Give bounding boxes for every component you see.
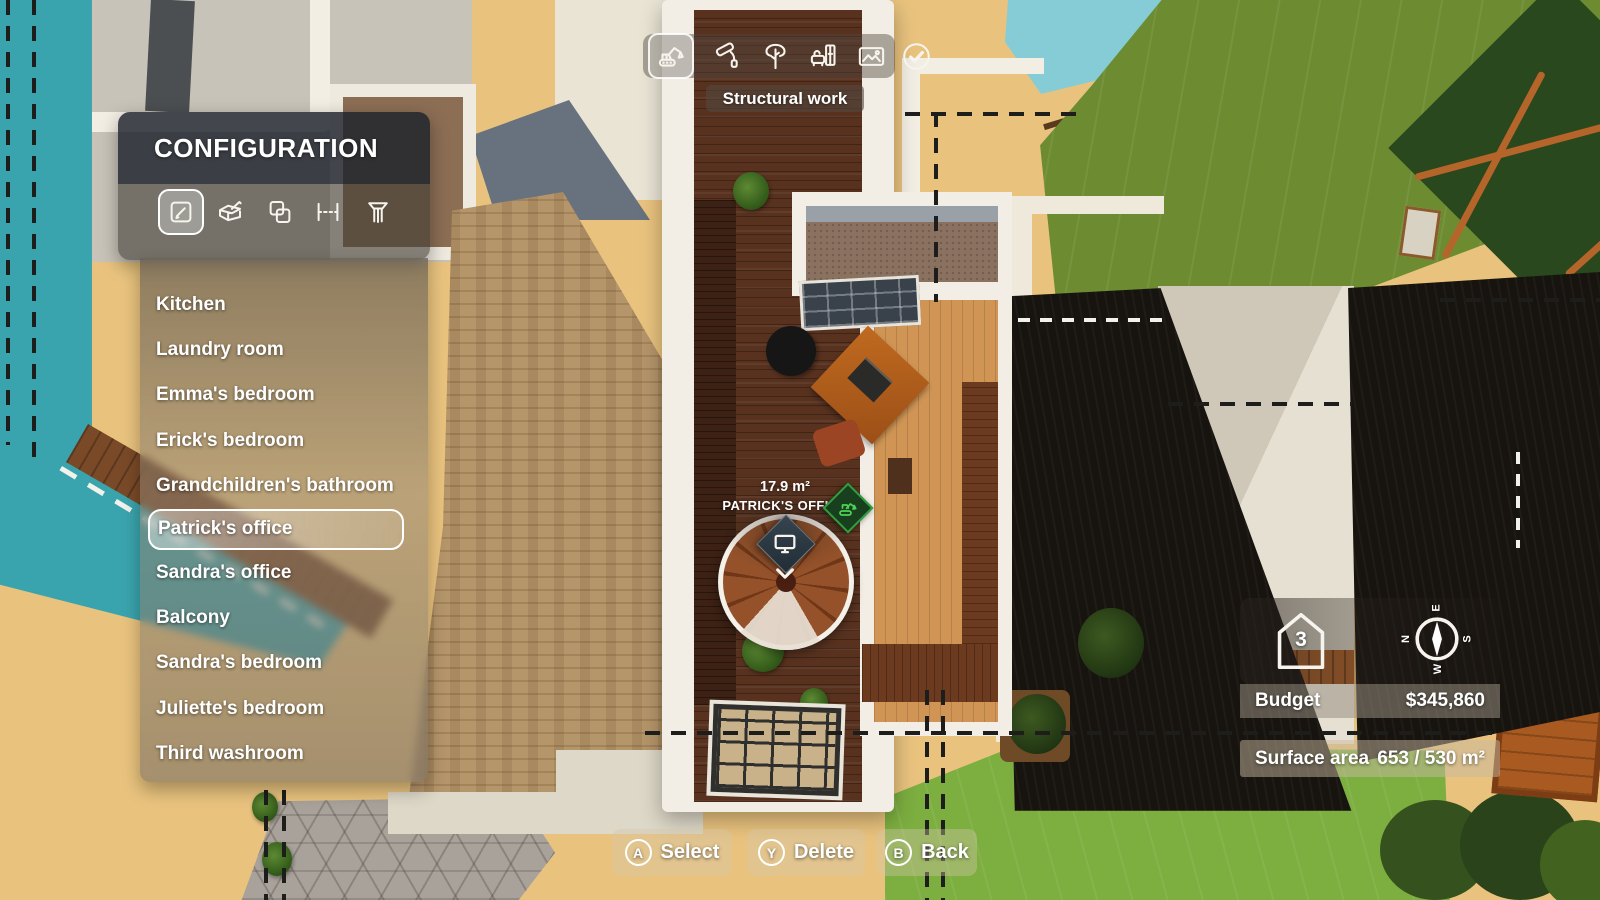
budget-label: Budget — [1255, 690, 1320, 712]
lower-wall-planks — [694, 200, 736, 705]
dashed-line — [282, 790, 286, 900]
button-a-icon: A — [625, 839, 652, 866]
configuration-toolbar — [118, 184, 430, 260]
dashed-line — [934, 112, 938, 302]
upper-room-gravel — [806, 222, 998, 282]
button-y-icon: Y — [758, 839, 785, 866]
room-item-label: Third washroom — [156, 743, 304, 765]
compass-left: N — [1400, 635, 1412, 643]
terrain-icon — [856, 41, 887, 72]
room-item-label: Patrick's office — [158, 518, 292, 540]
dashed-line — [32, 0, 36, 460]
room-item-kitchen[interactable]: Kitchen — [140, 282, 428, 327]
entry-mat — [711, 704, 842, 796]
office-bench-horizontal — [862, 644, 998, 702]
toolbar-active-label: Structural work — [706, 85, 864, 112]
tool-measure-wall[interactable] — [305, 189, 351, 235]
room-item-label: Sandra's bedroom — [156, 652, 322, 674]
pencil-square-icon — [166, 197, 196, 227]
chevron-down-icon — [774, 567, 796, 581]
office-bench-vertical — [962, 382, 998, 644]
compass-bottom: W — [1432, 664, 1444, 674]
dashed-line-white — [1516, 452, 1520, 548]
surface-area-value: 653 / 530 m² — [1377, 748, 1485, 770]
gray-wall-strip — [145, 0, 195, 113]
dashed-line — [1168, 402, 1352, 406]
surface-area-label: Surface area — [1255, 748, 1369, 770]
duplicate-icon — [265, 197, 295, 227]
check-icon — [901, 41, 932, 72]
room-item-emmas-bedroom[interactable]: Emma's bedroom — [140, 373, 428, 418]
toolbar-vegetation[interactable] — [752, 33, 798, 79]
paint-roller-icon — [712, 41, 743, 72]
tool-pillar[interactable] — [355, 189, 401, 235]
dashed-line — [264, 790, 268, 900]
select-button-label: Select — [661, 841, 720, 864]
compass-icon: E S W N — [1404, 606, 1470, 672]
button-b-icon: B — [885, 839, 912, 866]
room-item-laundry-room[interactable]: Laundry room — [140, 327, 428, 372]
game-scene: Structural work CONFIGURATION — [0, 0, 1600, 900]
side-table — [888, 458, 912, 494]
toolbar-furnishing[interactable] — [800, 33, 846, 79]
back-button[interactable]: B Back — [877, 829, 977, 876]
dashed-line — [645, 731, 1500, 735]
toolbar-terrain[interactable] — [848, 33, 894, 79]
floor-level: 3 — [1272, 628, 1330, 652]
configuration-title: CONFIGURATION — [118, 112, 430, 184]
room-item-balcony[interactable]: Balcony — [140, 595, 428, 640]
tree-icon — [760, 41, 791, 72]
back-button-label: Back — [921, 841, 969, 864]
concrete-walkway — [388, 792, 703, 834]
toolbar-validate[interactable] — [893, 33, 939, 79]
room-item-ericks-bedroom[interactable]: Erick's bedroom — [140, 418, 428, 463]
budget-row: Budget $345,860 — [1240, 684, 1500, 718]
room-item-label: Grandchildren's bathroom — [156, 475, 394, 497]
room-item-label: Kitchen — [156, 294, 226, 316]
dashed-line-white — [1018, 318, 1163, 322]
dashed-line — [905, 112, 1083, 116]
monitor-icon — [771, 530, 799, 558]
patio-wall-vertical — [310, 0, 330, 130]
toolbar-structural-work[interactable] — [648, 33, 694, 79]
room-item-grandchildrens-bathroom[interactable]: Grandchildren's bathroom — [140, 464, 428, 509]
skylight-panel — [799, 275, 921, 331]
room-item-sandras-bedroom[interactable]: Sandra's bedroom — [140, 641, 428, 686]
lounge-chair — [1399, 206, 1442, 261]
dashed-line — [1440, 298, 1600, 302]
room-item-label: Sandra's office — [156, 562, 291, 584]
toolbar-painting[interactable] — [704, 33, 750, 79]
box-pencil-icon — [215, 197, 245, 227]
tree — [1078, 608, 1144, 678]
room-item-label: Laundry room — [156, 339, 284, 361]
potted-plant — [733, 172, 769, 210]
room-item-label: Juliette's bedroom — [156, 698, 324, 720]
excavator-icon — [656, 41, 687, 72]
tool-duplicate-room[interactable] — [257, 189, 303, 235]
shingle-roof — [398, 192, 698, 812]
delete-button-label: Delete — [794, 841, 854, 864]
room-item-label: Erick's bedroom — [156, 430, 304, 452]
compass-top: E — [1431, 604, 1443, 611]
room-list: Kitchen Laundry room Emma's bedroom Eric… — [140, 258, 428, 782]
select-button[interactable]: A Select — [612, 829, 732, 876]
tree — [1008, 694, 1066, 754]
room-item-juliettes-bedroom[interactable]: Juliette's bedroom — [140, 686, 428, 731]
budget-value: $345,860 — [1406, 690, 1485, 712]
room-item-third-washroom[interactable]: Third washroom — [140, 732, 428, 777]
round-chair — [766, 326, 816, 376]
tool-edit-room[interactable] — [158, 189, 204, 235]
room-item-label: Emma's bedroom — [156, 384, 315, 406]
compass-ring — [1404, 606, 1470, 672]
configuration-panel: CONFIGURATION — [118, 112, 430, 260]
upper-room-gray-band — [806, 206, 998, 222]
delete-button[interactable]: Y Delete — [747, 829, 865, 876]
room-item-patricks-office-selected[interactable]: Patrick's office — [148, 509, 404, 550]
measure-icon — [313, 197, 343, 227]
pillar-icon — [363, 197, 393, 227]
cream-wall-right-top — [996, 196, 1164, 214]
excavator-badge-icon — [836, 496, 860, 520]
furniture-icon — [808, 41, 839, 72]
tool-construct-box[interactable] — [207, 189, 253, 235]
room-item-sandras-office[interactable]: Sandra's office — [140, 550, 428, 595]
room-item-label: Balcony — [156, 607, 230, 629]
compass-right: S — [1462, 635, 1474, 642]
surface-area-row: Surface area 653 / 530 m² — [1240, 740, 1500, 777]
dashed-line — [6, 0, 10, 445]
